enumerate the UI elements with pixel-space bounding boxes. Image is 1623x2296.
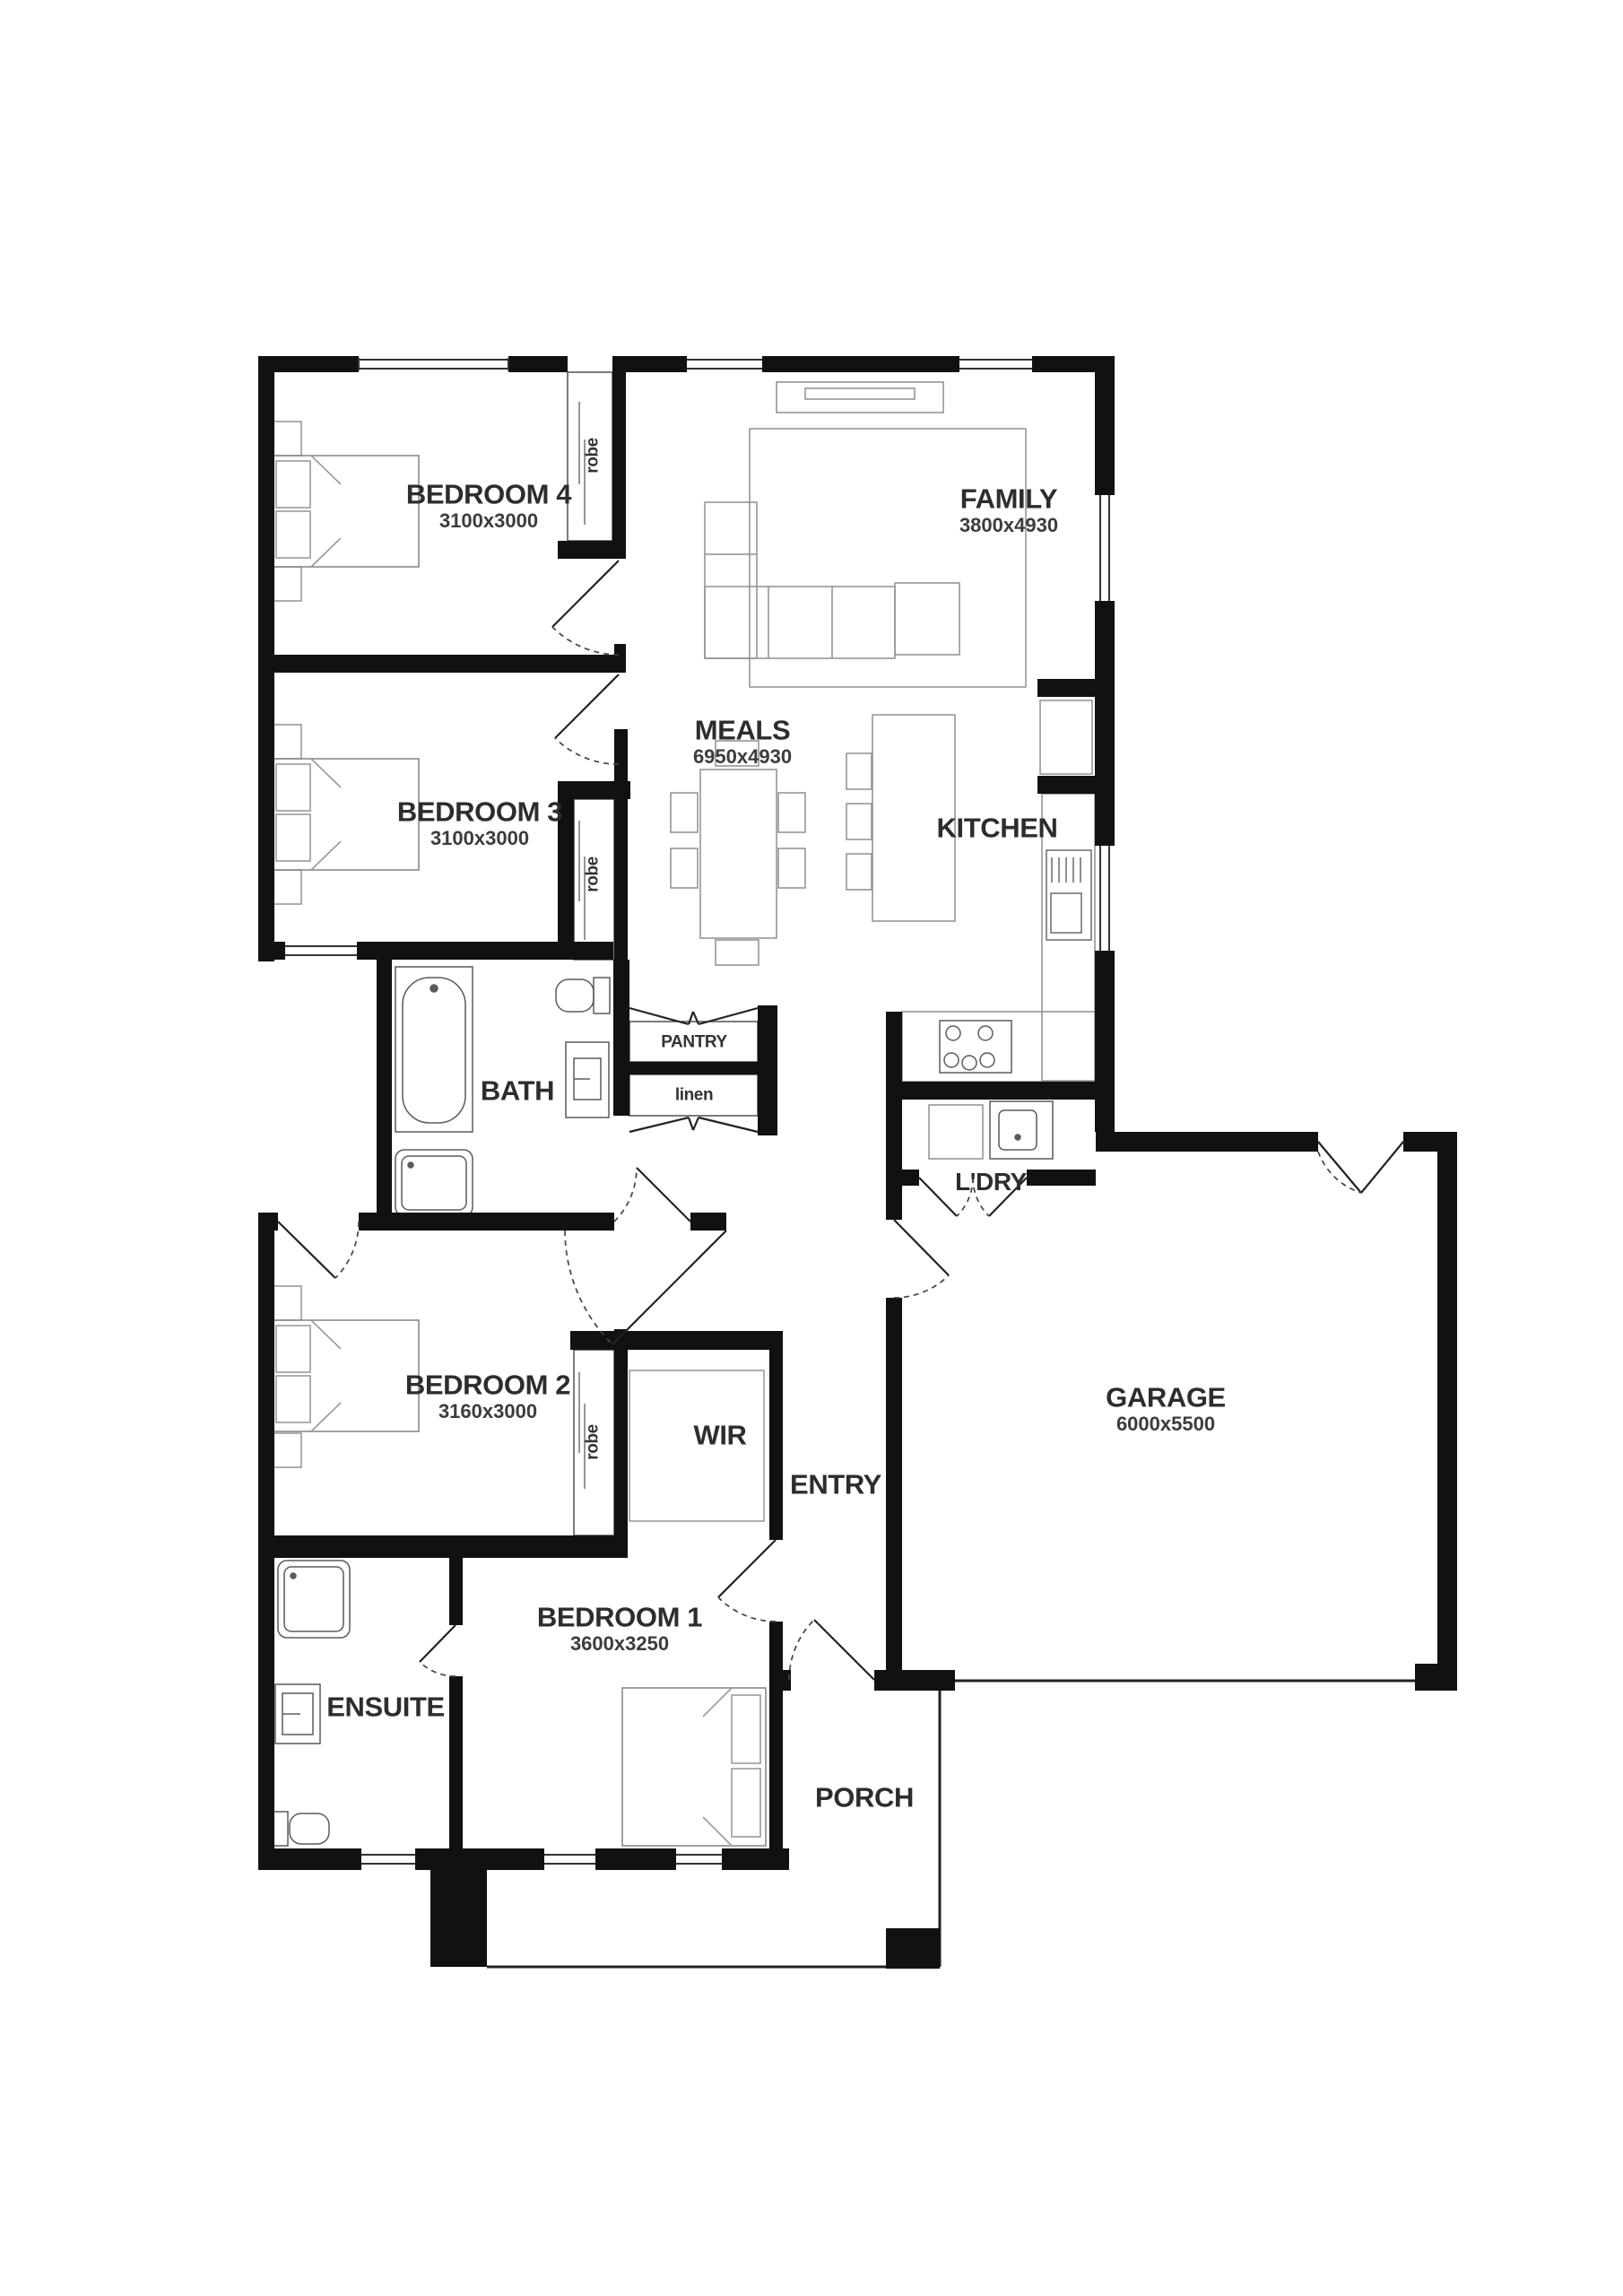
room-dims-bedroom-1: 3600x3250	[570, 1634, 669, 1654]
room-label-porch: PORCH	[815, 1784, 914, 1812]
room-dims-bedroom-2: 3160x3000	[438, 1402, 537, 1422]
furniture-kitchen	[846, 700, 1096, 1082]
furniture-bedroom-2	[271, 1286, 419, 1467]
furniture-bedroom-4	[271, 422, 419, 601]
room-label-bedroom-4: BEDROOM 4	[406, 481, 571, 509]
furniture-laundry	[929, 1101, 1053, 1159]
room-dims-garage: 6000x5500	[1116, 1414, 1215, 1434]
closet-label-robe-bed4: robe	[585, 438, 602, 474]
fixture-cooktop	[940, 1021, 1011, 1073]
room-label-bath: BATH	[481, 1077, 554, 1105]
room-label-garage: GARAGE	[1106, 1384, 1226, 1412]
room-label-bedroom-3: BEDROOM 3	[397, 798, 562, 826]
room-label-entry: ENTRY	[790, 1471, 881, 1499]
floor-plan-canvas: BEDROOM 4 3100x3000 FAMILY 3800x4930 MEA…	[0, 0, 1623, 2296]
closet-label-linen: linen	[675, 1087, 713, 1104]
closet-label-robe-bed3: robe	[585, 857, 602, 892]
room-dims-bedroom-4: 3100x3000	[439, 511, 538, 531]
walls	[258, 356, 1457, 1967]
room-label-family: FAMILY	[960, 485, 1057, 513]
floor-plan-drawing	[0, 0, 1623, 2296]
room-label-wir: WIR	[693, 1422, 746, 1449]
room-label-laundry: L'DRY	[955, 1170, 1027, 1195]
slab-edges	[487, 1681, 1415, 1967]
room-dims-bedroom-3: 3100x3000	[430, 829, 529, 848]
porch-pier	[886, 1928, 940, 1969]
room-label-bedroom-2: BEDROOM 2	[405, 1371, 570, 1399]
room-dims-meals: 6950x4930	[693, 747, 792, 767]
room-label-ensuite: ENSUITE	[326, 1693, 445, 1721]
furniture-bedroom-1	[622, 1688, 766, 1846]
room-dims-family: 3800x4930	[959, 516, 1058, 535]
room-label-meals: MEALS	[695, 717, 791, 744]
furniture-meals-dining	[671, 741, 805, 965]
room-label-kitchen: KITCHEN	[937, 814, 1058, 842]
closet-label-robe-bed2: robe	[585, 1424, 602, 1460]
doors	[278, 561, 1403, 1680]
room-label-bedroom-1: BEDROOM 1	[537, 1604, 702, 1631]
closet-label-pantry: PANTRY	[661, 1034, 727, 1051]
